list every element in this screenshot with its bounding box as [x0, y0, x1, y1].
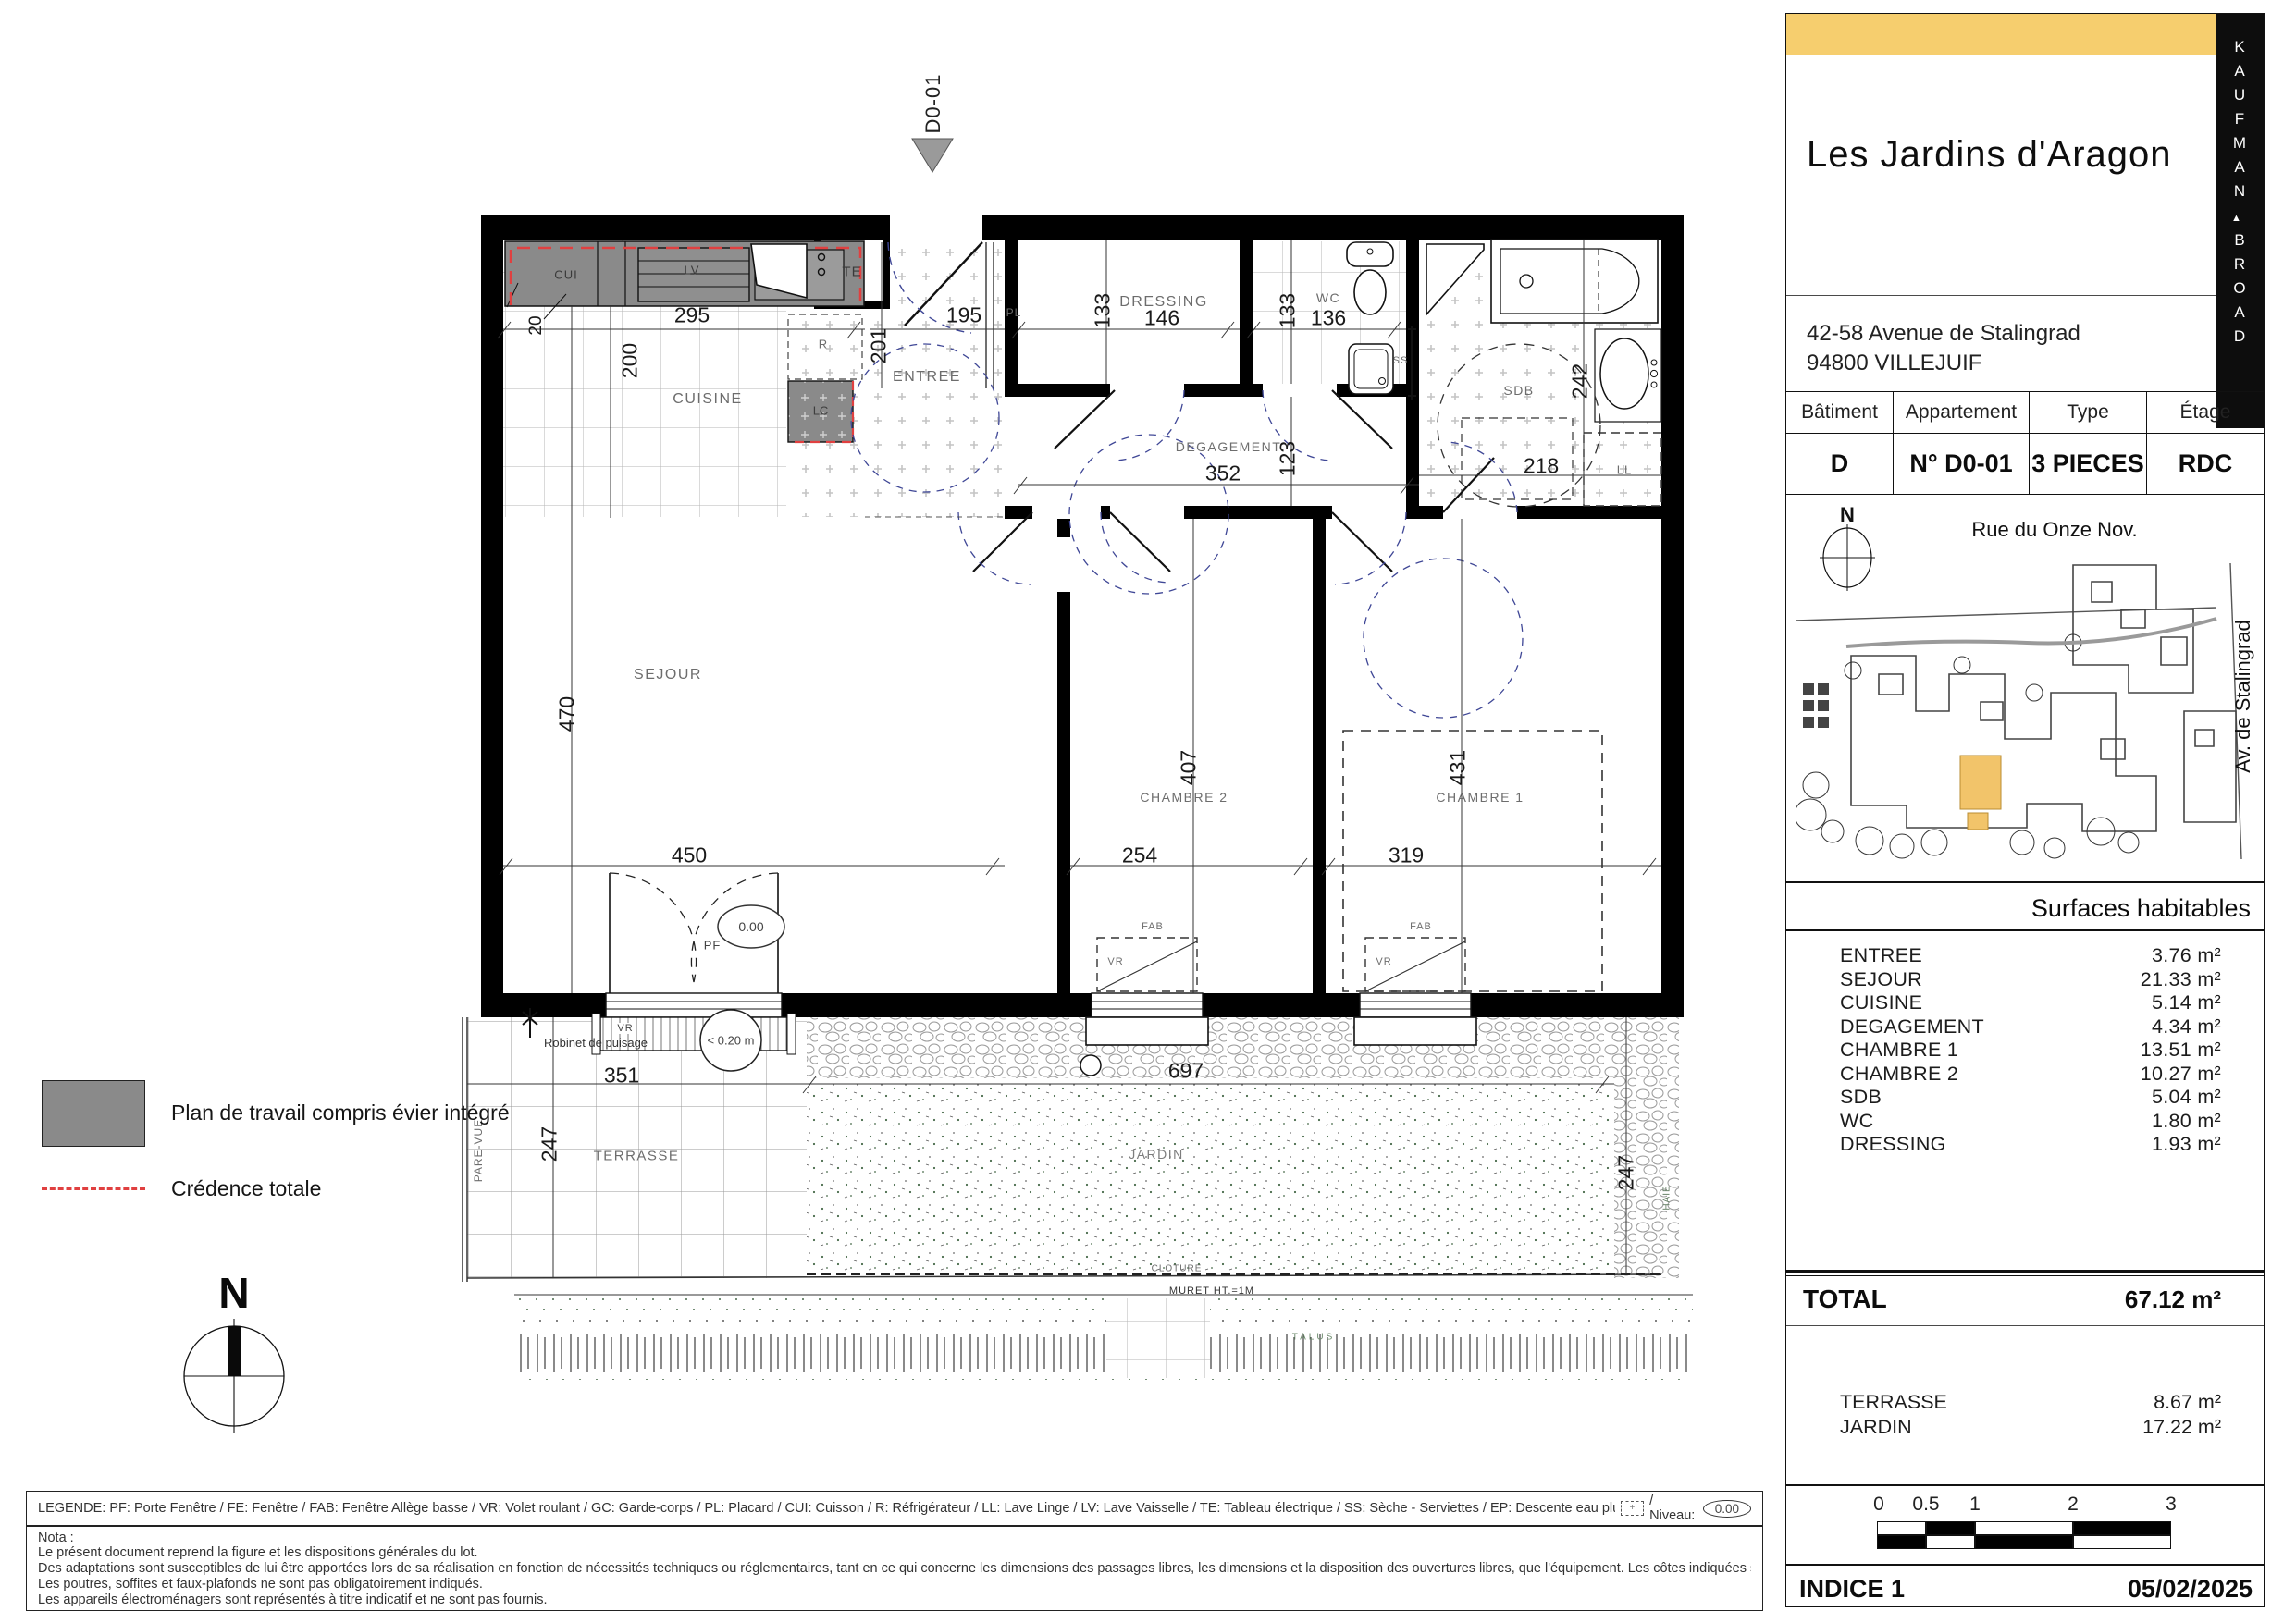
- col-batiment: Bâtiment: [1786, 392, 1893, 433]
- bathtub-icon: [1491, 240, 1658, 323]
- legend-niveau-value: 0.00: [1703, 1500, 1751, 1518]
- project-title: Les Jardins d'Aragon: [1807, 134, 2172, 176]
- pare-vue-label: PARE-VUE: [472, 1119, 485, 1182]
- address-line2: 94800 VILLEJUIF: [1807, 350, 1981, 376]
- brand-triangle-icon: ▲: [2231, 214, 2248, 224]
- pare-vue-line: [463, 1017, 467, 1282]
- tag-cui: CUI: [554, 268, 577, 282]
- room-label-chambre1: CHAMBRE 1: [1436, 790, 1524, 805]
- room-label-terrasse: TERRASSE: [594, 1149, 680, 1164]
- unit-info-table: Bâtiment Appartement Type Étage D N° D0-…: [1786, 391, 2264, 495]
- total-value: 67.12 m²: [2125, 1285, 2221, 1314]
- dim-697: 697: [1168, 1059, 1204, 1084]
- legend-niveau: / Niveau:: [1649, 1494, 1697, 1523]
- dim-200: 200: [618, 343, 643, 378]
- chambre1-dashed-zone: [1343, 731, 1602, 991]
- surface-row: SEJOUR21.33 m²: [1840, 968, 2221, 992]
- legend-bar: LEGENDE: PF: Porte Fenêtre / FE: Fenêtre…: [26, 1491, 1763, 1526]
- total-row: TOTAL 67.12 m²: [1803, 1285, 2221, 1314]
- worktop-label: Plan de travail compris évier intégré: [171, 1100, 510, 1125]
- col-etage: Étage: [2146, 392, 2264, 433]
- date-label: 05/02/2025: [2128, 1575, 2253, 1604]
- nota-line: Le présent document reprend la figure et…: [38, 1545, 1751, 1561]
- dim-247-jardin: 247: [1614, 1155, 1639, 1190]
- dim-254: 254: [1122, 843, 1157, 868]
- cloture-label: CLOTURE: [1152, 1264, 1203, 1274]
- dim-133b: 133: [1276, 293, 1301, 328]
- north-label: N: [218, 1268, 249, 1318]
- compass-rose-icon: [181, 1313, 292, 1433]
- divider: [1786, 1564, 2264, 1566]
- surfaces-header: Surfaces habitables: [2031, 894, 2251, 923]
- divider: [1786, 881, 2264, 883]
- annex-row: JARDIN17.22 m²: [1840, 1415, 2221, 1440]
- dim-195: 195: [946, 303, 981, 328]
- nota-line: Les poutres, soffites et faux-plafonds n…: [38, 1577, 1751, 1592]
- muret-label: MURET HT.=1M: [1169, 1285, 1254, 1297]
- brand-word-1: KAUFMAN: [2232, 38, 2248, 206]
- surface-row: DRESSING1.93 m²: [1840, 1133, 2221, 1157]
- brand-word-2: BROAD: [2232, 231, 2248, 351]
- jardin-ground: [807, 1078, 1614, 1276]
- dim-123: 123: [1276, 441, 1301, 476]
- divider: [1786, 1270, 2264, 1273]
- accent-band: [1786, 14, 2216, 55]
- tag-ll: LL: [1617, 463, 1632, 477]
- divider: [1786, 1275, 2264, 1276]
- room-label-entree: ENTREE: [893, 369, 961, 386]
- dim-450: 450: [672, 843, 707, 868]
- site-map: N Rue du Onze Nov.: [1786, 495, 2264, 881]
- address-line1: 42-58 Avenue de Stalingrad: [1807, 321, 2080, 347]
- val-appartement: N° D0-01: [1893, 434, 2029, 494]
- divider: [1786, 929, 2264, 931]
- washbasin-icon: [1595, 329, 1661, 422]
- tag-pf: PF: [704, 939, 722, 953]
- gravel-strip: [807, 1017, 1661, 1078]
- dim-247-terrasse: 247: [537, 1126, 562, 1162]
- room-label-cuisine: CUISINE: [673, 391, 742, 408]
- credence-swatch: [42, 1187, 145, 1190]
- dim-136: 136: [1311, 306, 1346, 331]
- dim-319: 319: [1389, 843, 1424, 868]
- dim-352: 352: [1205, 461, 1241, 486]
- unit-highlight: [1960, 756, 2001, 809]
- ep-downpipe-icon: [1080, 1055, 1101, 1076]
- credence-label: Crédence totale: [171, 1176, 321, 1201]
- col-appartement: Appartement: [1893, 392, 2029, 433]
- val-etage: RDC: [2146, 434, 2264, 494]
- hand-basin-icon: [1349, 344, 1393, 394]
- tag-lc: LC: [813, 404, 829, 418]
- nota-line: Des adaptations sont susceptibles de lui…: [38, 1561, 1751, 1577]
- floor-plan-sheet: { "brand": {"word1": "KAUFMAN", "word2":…: [0, 0, 2296, 1623]
- tag-fab-ch1: FAB: [1410, 921, 1432, 932]
- annex-row: TERRASSE8.67 m²: [1840, 1390, 2221, 1415]
- surface-row: DEGAGEMENT4.34 m²: [1840, 1015, 2221, 1039]
- surface-row: CHAMBRE 210.27 m²: [1840, 1063, 2221, 1087]
- surface-row: CUISINE5.14 m²: [1840, 991, 2221, 1015]
- fab-window-ch2: [1086, 938, 1208, 1045]
- tap-label: Robinet de puisage: [544, 1036, 648, 1050]
- nota-line: Les appareils électroménagers sont repré…: [38, 1592, 1751, 1608]
- val-type: 3 PIECES: [2029, 434, 2146, 494]
- room-label-wc: WC: [1316, 290, 1340, 305]
- legend-text: LEGENDE: PF: Porte Fenêtre / FE: Fenêtre…: [38, 1501, 1615, 1516]
- tag-vr-pf: VR: [614, 1023, 636, 1034]
- dim-242: 242: [1568, 363, 1593, 399]
- tag-ss: SS: [1393, 355, 1409, 366]
- dim-431: 431: [1446, 750, 1471, 785]
- nota-box: Nota : Le présent document reprend la fi…: [26, 1526, 1763, 1611]
- site-map-drawing: [1796, 554, 2258, 878]
- seuil-value: < 0.20 m: [708, 1034, 755, 1048]
- total-label: TOTAL: [1803, 1285, 1887, 1314]
- north-compass: N: [181, 1269, 292, 1454]
- indice-label: INDICE 1: [1799, 1575, 1905, 1604]
- divider: [1786, 1325, 2264, 1326]
- room-label-chambre2: CHAMBRE 2: [1140, 790, 1228, 805]
- divider: [1786, 1484, 2264, 1486]
- tag-pl: PL: [1006, 306, 1022, 319]
- scale-bar: 0 0.5 1 2 3: [1877, 1495, 2173, 1556]
- street-top-label: Rue du Onze Nov.: [1971, 518, 2137, 542]
- dim-146: 146: [1144, 306, 1179, 331]
- dim-407: 407: [1177, 750, 1202, 785]
- dim-470: 470: [555, 696, 580, 732]
- val-batiment: D: [1786, 434, 1893, 494]
- room-label-degagement: DEGAGEMENT: [1176, 439, 1282, 454]
- surface-row: ENTREE3.76 m²: [1840, 944, 2221, 968]
- room-label-sdb: SDB: [1503, 383, 1534, 398]
- floor-plan-drawing: [407, 46, 1721, 1406]
- room-label-sejour: SEJOUR: [634, 667, 702, 683]
- surface-row: CHAMBRE 113.51 m²: [1840, 1039, 2221, 1063]
- dim-351: 351: [604, 1064, 639, 1088]
- tag-vr-ch1: VR: [1376, 956, 1391, 967]
- street-right-label: Av. de Stalingrad: [2231, 620, 2255, 773]
- divider: [1786, 295, 2216, 296]
- entrance-marker-triangle: [912, 139, 953, 172]
- surfaces-table: ENTREE3.76 m² SEJOUR21.33 m² CUISINE5.14…: [1840, 944, 2221, 1157]
- annex-surfaces: TERRASSE8.67 m² JARDIN17.22 m²: [1840, 1390, 2221, 1440]
- dim-295: 295: [674, 303, 710, 328]
- col-type: Type: [2029, 392, 2146, 433]
- dim-218: 218: [1524, 454, 1559, 479]
- nota-title: Nota :: [38, 1531, 1751, 1546]
- title-block-panel: KAUFMAN ▲ BROAD Les Jardins d'Aragon 42-…: [1785, 13, 2265, 1607]
- tag-te: TE: [842, 264, 861, 280]
- dim-20: 20: [526, 315, 547, 335]
- tag-vr-ch2: VR: [1107, 956, 1123, 967]
- talus-band: [514, 1297, 1693, 1380]
- worktop-swatch: [42, 1080, 145, 1147]
- surface-row: SDB5.04 m²: [1840, 1086, 2221, 1110]
- surface-row: WC1.80 m²: [1840, 1110, 2221, 1134]
- brand-logo: KAUFMAN ▲ BROAD: [2216, 14, 2264, 428]
- soffit-icon: +: [1621, 1501, 1644, 1516]
- tag-fab-ch2: FAB: [1142, 921, 1164, 932]
- dim-133a: 133: [1091, 293, 1116, 328]
- tag-r: R: [819, 338, 828, 351]
- haie-label: HAIE: [1662, 1185, 1673, 1210]
- room-label-jardin: JARDIN: [1129, 1147, 1184, 1162]
- unit-tag: D0-01: [921, 74, 945, 134]
- dim-201: 201: [867, 328, 892, 363]
- level-value: 0.00: [738, 919, 763, 934]
- tag-lv: LV: [685, 264, 700, 277]
- talus-label: TALUS: [1292, 1333, 1336, 1343]
